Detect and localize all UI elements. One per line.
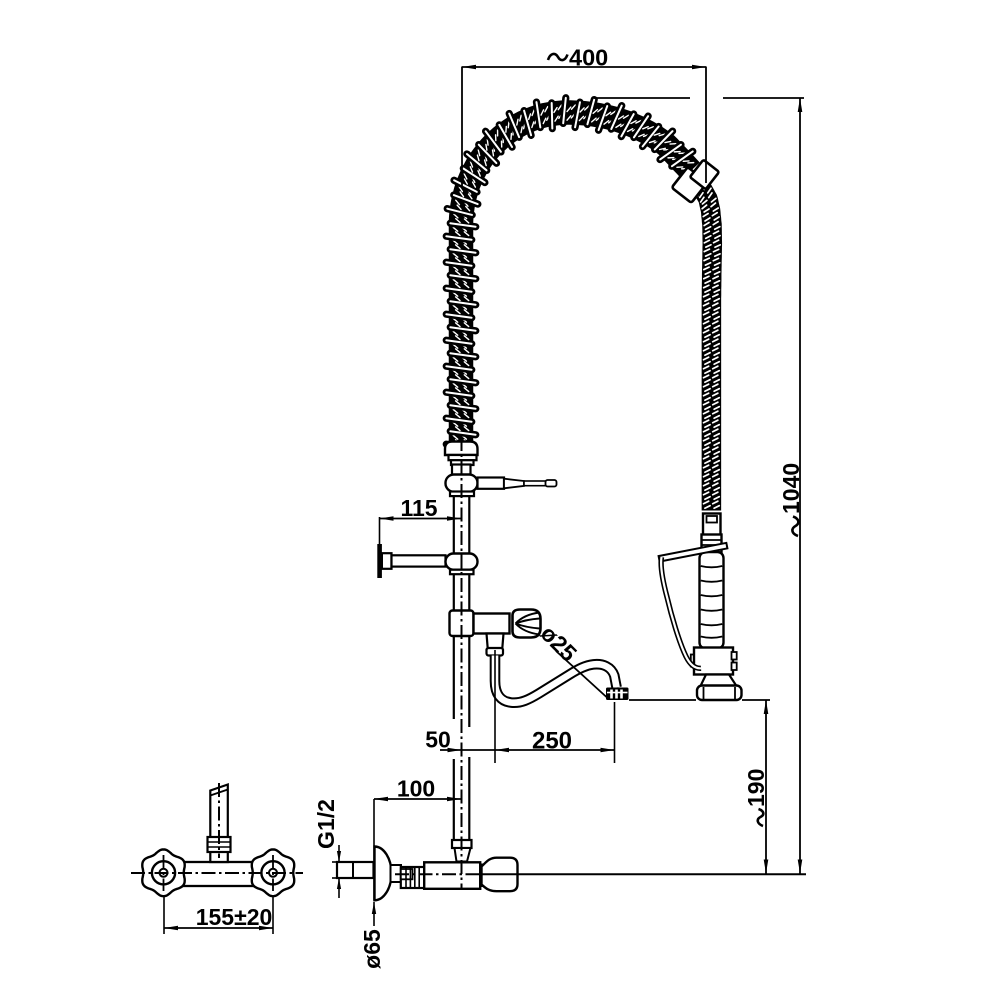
svg-text:190: 190 [743, 769, 769, 807]
svg-text:G1/2: G1/2 [313, 799, 339, 849]
svg-text:100: 100 [397, 776, 435, 802]
svg-text:115: 115 [400, 495, 437, 521]
svg-text:1040: 1040 [778, 463, 804, 514]
svg-text:50: 50 [425, 727, 451, 753]
svg-text:400: 400 [569, 45, 608, 71]
svg-text:ø65: ø65 [359, 929, 385, 969]
svg-text:250: 250 [532, 728, 572, 755]
svg-text:155±20: 155±20 [196, 904, 273, 930]
